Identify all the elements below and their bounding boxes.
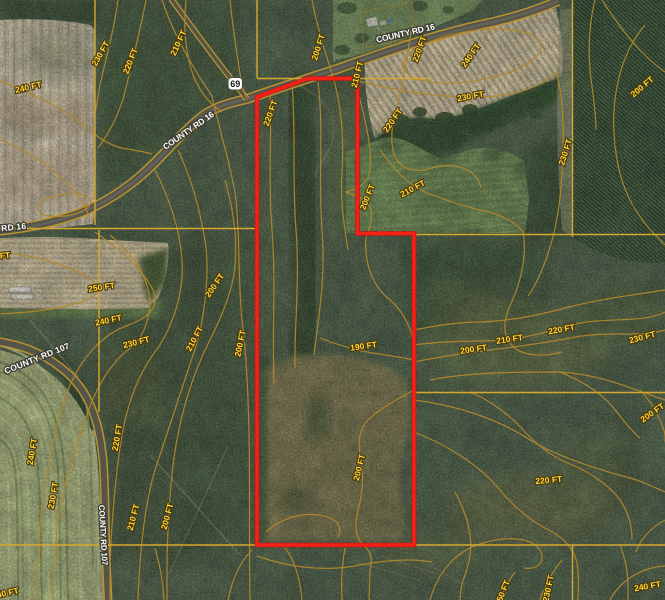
svg-text:69: 69 xyxy=(230,79,240,89)
